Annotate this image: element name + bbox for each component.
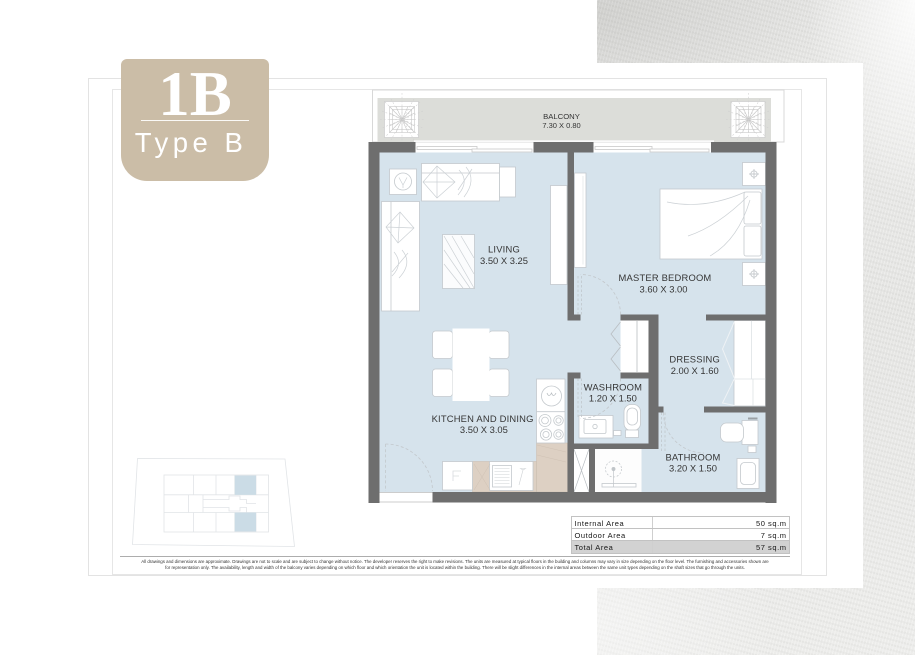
svg-text:3.20 X 1.50: 3.20 X 1.50	[669, 463, 717, 474]
svg-text:1.20 X 1.50: 1.20 X 1.50	[589, 393, 637, 404]
svg-text:WASHROOM: WASHROOM	[584, 382, 643, 393]
svg-text:LIVING: LIVING	[488, 244, 520, 255]
svg-text:3.60 X 3.00: 3.60 X 3.00	[640, 283, 688, 294]
svg-text:MASTER BEDROOM: MASTER BEDROOM	[619, 272, 712, 283]
svg-text:3.50 X 3.25: 3.50 X 3.25	[480, 255, 528, 266]
svg-text:BATHROOM: BATHROOM	[665, 452, 720, 463]
svg-text:BALCONY: BALCONY	[543, 112, 580, 121]
svg-text:KITCHEN AND DINING: KITCHEN AND DINING	[432, 413, 534, 424]
svg-text:2.00 X 1.60: 2.00 X 1.60	[671, 365, 719, 376]
svg-text:7.30 X 0.80: 7.30 X 0.80	[542, 121, 580, 130]
svg-text:DRESSING: DRESSING	[669, 354, 720, 365]
svg-text:3.50 X 3.05: 3.50 X 3.05	[460, 424, 508, 435]
